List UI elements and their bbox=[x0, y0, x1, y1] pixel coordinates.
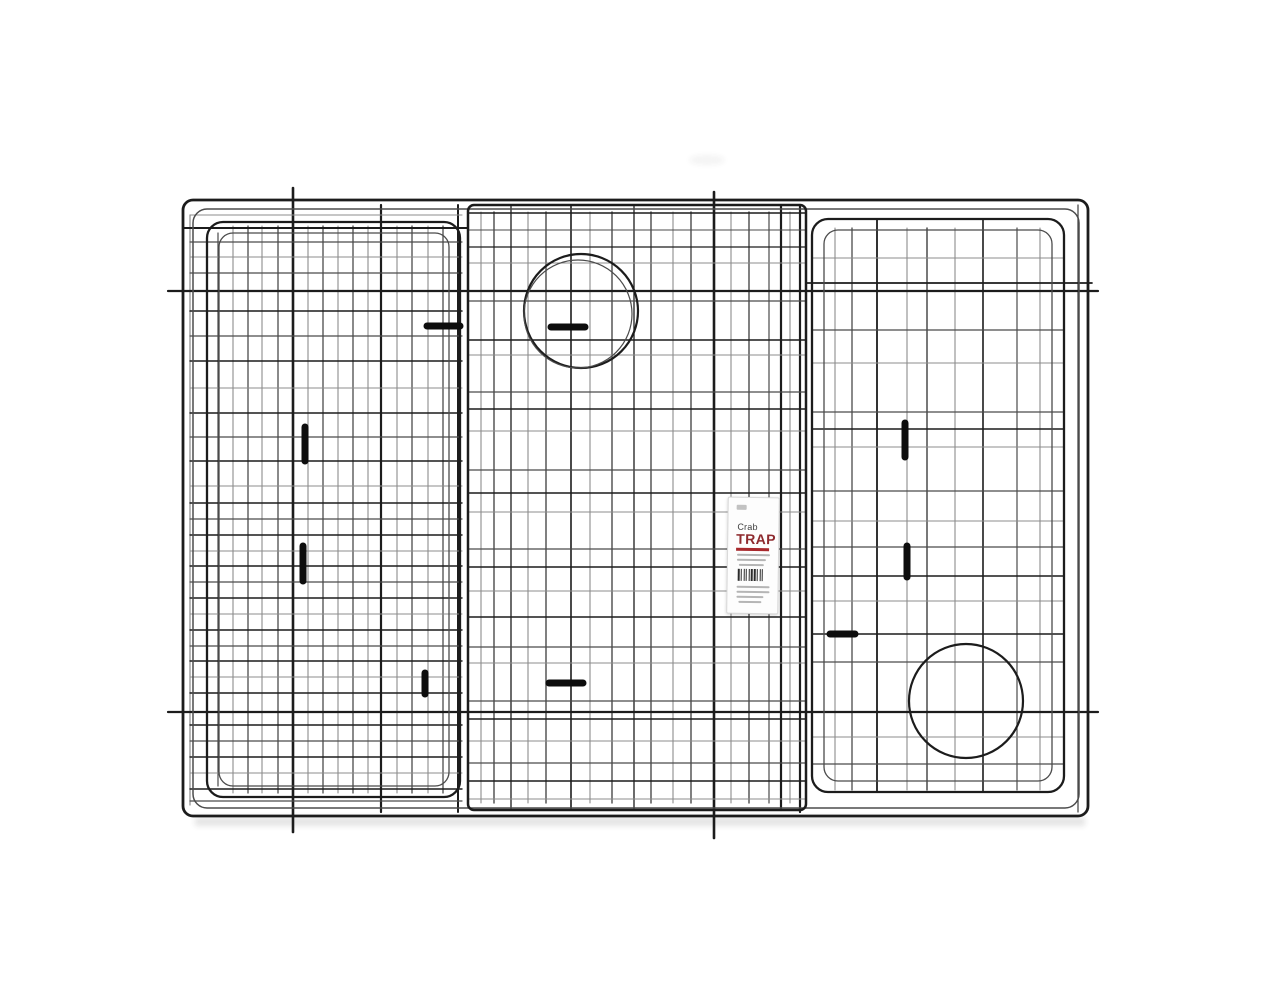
tag-logo-mark bbox=[737, 505, 747, 510]
tag-fineprint-lines bbox=[729, 498, 779, 499]
escape-ring bbox=[909, 644, 1023, 758]
tag-fineprint-bar bbox=[737, 554, 770, 556]
tag-fineprint-bar bbox=[739, 564, 764, 566]
barcode-bar bbox=[746, 569, 747, 581]
barcode-bar bbox=[757, 569, 758, 581]
product-photo-crab-trap: Crab TRAP bbox=[0, 0, 1280, 989]
wire-panel-frame bbox=[207, 222, 460, 797]
tag-red-accent-bar bbox=[736, 548, 769, 551]
wire-panel-frame bbox=[219, 233, 449, 786]
barcode-bar bbox=[762, 569, 763, 581]
wire-panel-frame bbox=[824, 230, 1052, 781]
tag-fineprint-bar bbox=[737, 559, 766, 561]
trap-drop-shadow bbox=[195, 817, 1085, 826]
tag-fineprint-bar bbox=[736, 596, 763, 598]
tag-fineprint-bar bbox=[736, 591, 769, 593]
barcode-bar bbox=[738, 569, 740, 581]
wire-panel-frame bbox=[812, 219, 1064, 792]
tag-fineprint-bar bbox=[738, 601, 761, 603]
tag-fineprint-bar bbox=[737, 586, 770, 588]
tag-barcode bbox=[738, 569, 768, 581]
barcode-bar bbox=[749, 569, 750, 581]
product-hang-tag: Crab TRAP bbox=[726, 497, 780, 615]
entry-ring bbox=[524, 260, 632, 368]
barcode-bar bbox=[754, 569, 756, 581]
entry-ring bbox=[524, 254, 638, 368]
barcode-bar bbox=[741, 569, 742, 581]
tag-title-line2: TRAP bbox=[736, 532, 776, 548]
barcode-bar bbox=[760, 569, 761, 581]
background-smudge bbox=[689, 155, 725, 165]
barcode-bar bbox=[744, 569, 745, 581]
barcode-bar bbox=[751, 569, 753, 581]
crab-trap-wire-mesh bbox=[0, 0, 1280, 989]
